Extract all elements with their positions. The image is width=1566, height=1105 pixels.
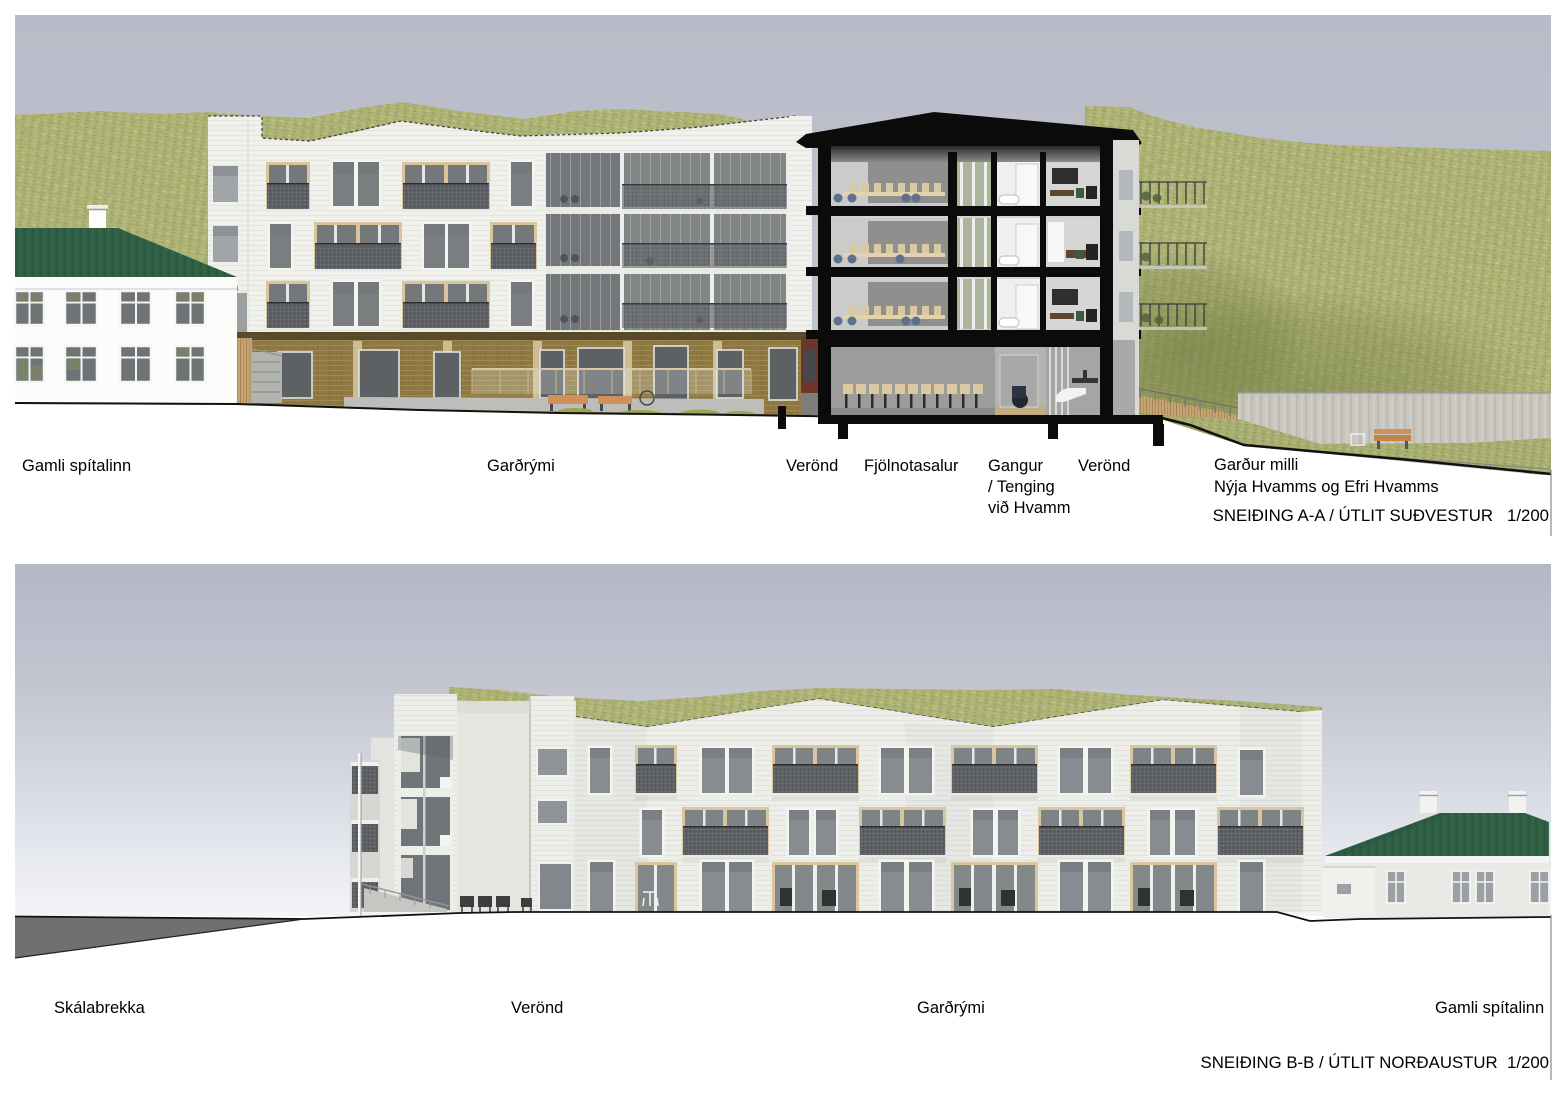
svg-text:Verönd: Verönd [511,999,563,1017]
svg-text:Verönd: Verönd [786,457,838,475]
svg-text:Skálabrekka: Skálabrekka [54,999,146,1017]
svg-text:Garðrými: Garðrými [487,457,555,475]
svg-text:SNEIÐING A-A / ÚTLIT SUÐVESTUR: SNEIÐING A-A / ÚTLIT SUÐVESTUR 1/200 [1213,506,1549,525]
svg-text:Nýja Hvamms og Efri Hvamms: Nýja Hvamms og Efri Hvamms [1214,478,1439,496]
svg-text:Gamli spítalinn: Gamli spítalinn [1435,999,1544,1017]
svg-text:Verönd: Verönd [1078,457,1130,475]
svg-text:Fjölnotasalur: Fjölnotasalur [864,457,959,475]
svg-text:Gamli spítalinn: Gamli spítalinn [22,457,131,475]
svg-text:Gangur: Gangur [988,457,1044,475]
svg-text:SNEIÐING B-B / ÚTLIT NORÐAUSTU: SNEIÐING B-B / ÚTLIT NORÐAUSTUR 1/200 [1201,1053,1549,1072]
svg-text:Garðrými: Garðrými [917,999,985,1017]
svg-text:við Hvamm: við Hvamm [988,499,1071,517]
svg-text:Garður milli: Garður milli [1214,456,1298,474]
svg-text:/ Tenging: / Tenging [988,478,1055,496]
